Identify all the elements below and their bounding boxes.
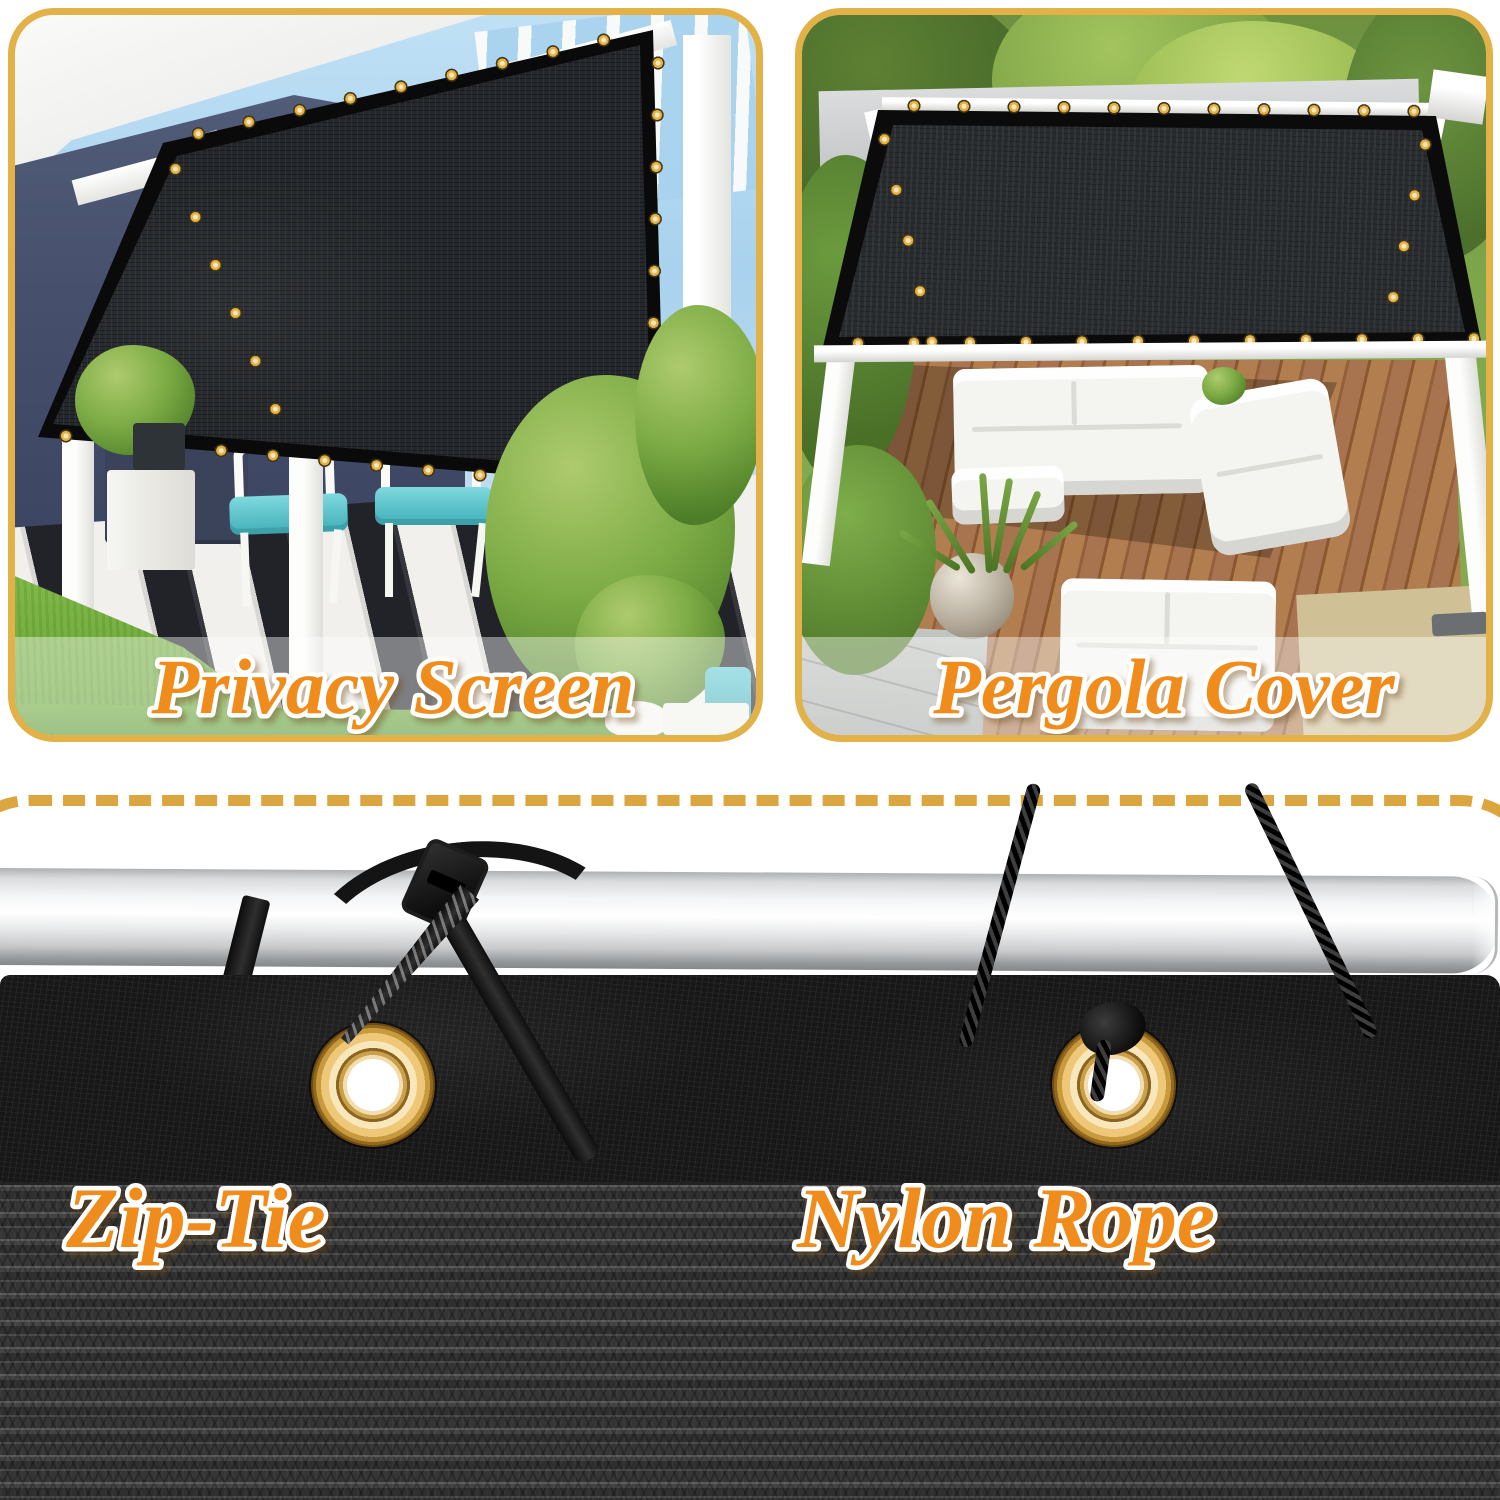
yucca-plant [930,463,1050,573]
panel-privacy-screen: Privacy Screen [8,8,763,742]
mounting-pole [0,868,1498,974]
pole-end-cap [1472,877,1499,974]
leaf [979,473,993,573]
cushion-seam [1216,454,1323,478]
product-image: Privacy Screen [0,0,1500,1500]
plant-pot [133,423,185,475]
cushion-seam [1071,381,1077,425]
cushion-seam [972,423,1182,432]
nylon-rope-label: Nylon Rope [796,1170,1215,1266]
pergola-cover-label: Pergola Cover [932,643,1395,730]
planter-box [107,470,195,570]
zip-tie-label: Zip-Tie [65,1170,325,1266]
outdoor-armchair [1187,376,1353,558]
bush [635,305,756,525]
privacy-screen-scene: Privacy Screen [15,15,756,735]
privacy-screen-caption: Privacy Screen [15,623,756,735]
chair-leg [385,523,393,597]
zip-tie-caption: Zip-Tie [6,1155,386,1285]
pergola-cover-caption: Pergola Cover [802,623,1486,735]
panel-pergola-cover: Pergola Cover [795,8,1493,742]
pergola-cover-scene: Pergola Cover [802,15,1486,735]
chair-leg [329,529,342,603]
fastening-demo-section: Zip-Tie Nylon Rope [0,750,1500,1500]
privacy-screen-label: Privacy Screen [150,643,634,730]
chair-leg [240,532,251,606]
chair-cushion [375,487,493,525]
nylon-rope-caption: Nylon Rope [746,1155,1266,1285]
